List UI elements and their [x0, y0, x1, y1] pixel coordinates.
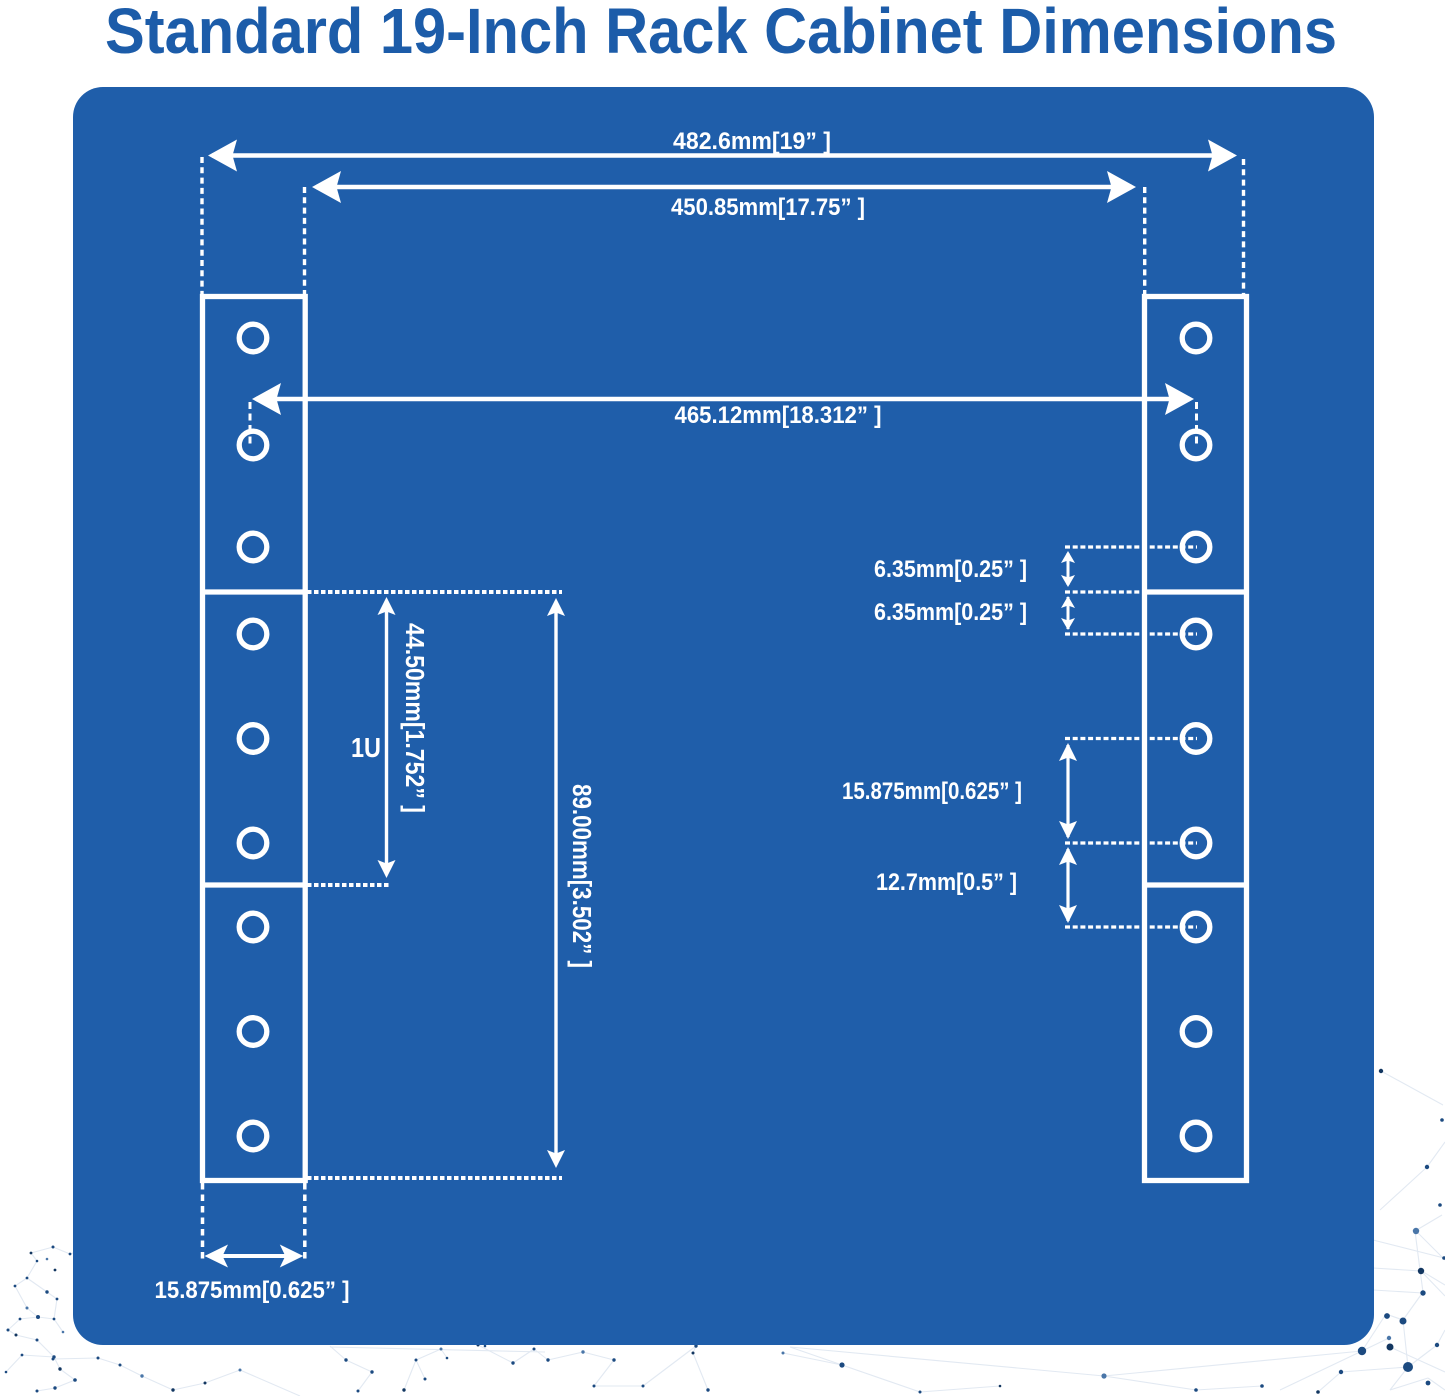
- svg-text:15.875mm[0.625” ]: 15.875mm[0.625” ]: [842, 778, 1022, 805]
- svg-text:Standard 19-Inch Rack Cabinet: Standard 19-Inch Rack Cabinet Dimensions: [105, 0, 1337, 67]
- svg-text:450.85mm[17.75” ]: 450.85mm[17.75” ]: [671, 194, 865, 221]
- svg-text:482.6mm[19” ]: 482.6mm[19” ]: [673, 128, 831, 155]
- svg-text:465.12mm[18.312” ]: 465.12mm[18.312” ]: [675, 402, 882, 429]
- svg-text:12.7mm[0.5” ]: 12.7mm[0.5” ]: [876, 869, 1017, 896]
- svg-text:89.00mm[3.502” ]: 89.00mm[3.502” ]: [567, 784, 597, 968]
- svg-text:6.35mm[0.25” ]: 6.35mm[0.25” ]: [874, 556, 1027, 583]
- svg-text:15.875mm[0.625” ]: 15.875mm[0.625” ]: [155, 1277, 350, 1304]
- svg-text:6.35mm[0.25” ]: 6.35mm[0.25” ]: [874, 599, 1027, 626]
- svg-text:44.50mm[1.752” ]: 44.50mm[1.752” ]: [400, 623, 430, 813]
- svg-text:1U: 1U: [351, 732, 381, 763]
